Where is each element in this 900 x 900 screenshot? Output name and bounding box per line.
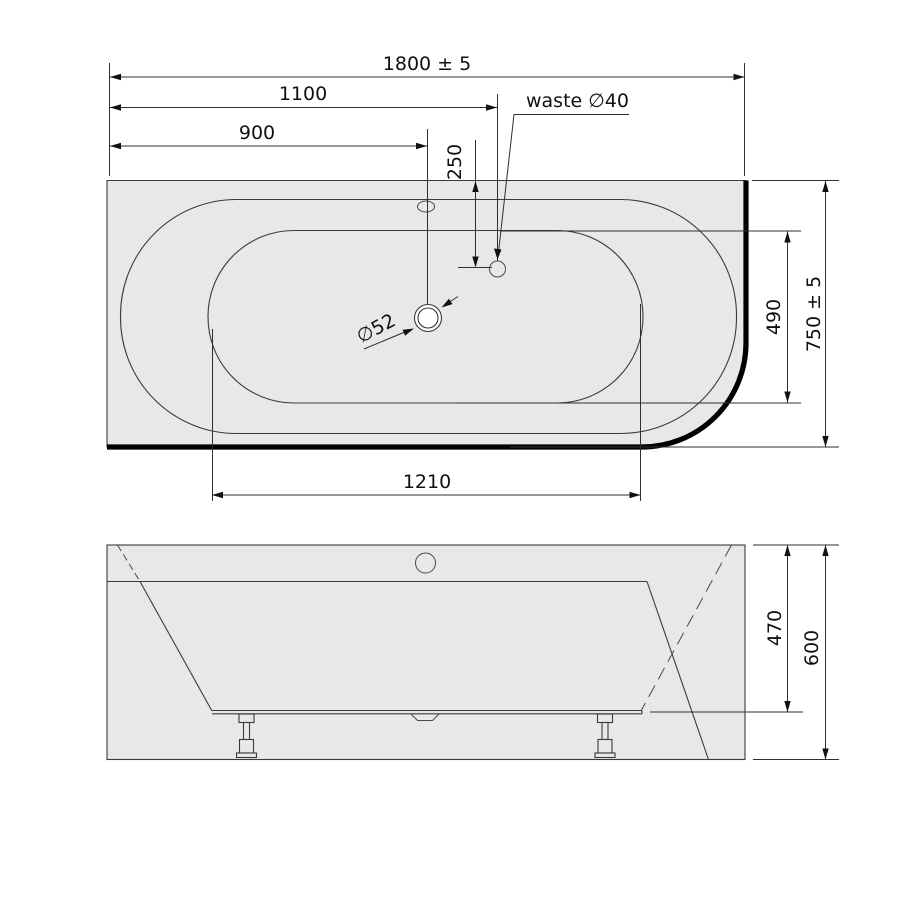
dim-height-total: 600 (753, 545, 839, 760)
dim-waste-from-edge-label: 250 (444, 144, 466, 180)
dim-height-total-label: 600 (801, 630, 823, 666)
dim-width-total-label: 750 ± 5 (803, 276, 825, 352)
dim-height-shell-label: 470 (764, 610, 786, 646)
dim-length-to-waste-label: 1100 (279, 83, 327, 105)
dim-length-total-label: 1800 ± 5 (383, 53, 471, 75)
dim-basin-width-label: 490 (763, 299, 785, 335)
dim-length-to-waste: 1100 (110, 83, 497, 111)
front-panel-outline (107, 545, 745, 760)
dim-length-to-drain-label: 900 (239, 122, 275, 144)
bathtub-technical-drawing: 1800 ± 5 1100 900 250 (0, 0, 900, 900)
front-view: 470 600 (107, 545, 839, 760)
technical-drawing-page: 1800 ± 5 1100 900 250 (0, 0, 900, 900)
dim-length-to-drain: 900 (110, 122, 427, 149)
plan-view: 1800 ± 5 1100 900 250 (107, 53, 839, 501)
dim-basin-length-label: 1210 (403, 471, 451, 493)
drain-hole (415, 305, 442, 332)
waste-label: waste ∅40 (526, 90, 629, 112)
